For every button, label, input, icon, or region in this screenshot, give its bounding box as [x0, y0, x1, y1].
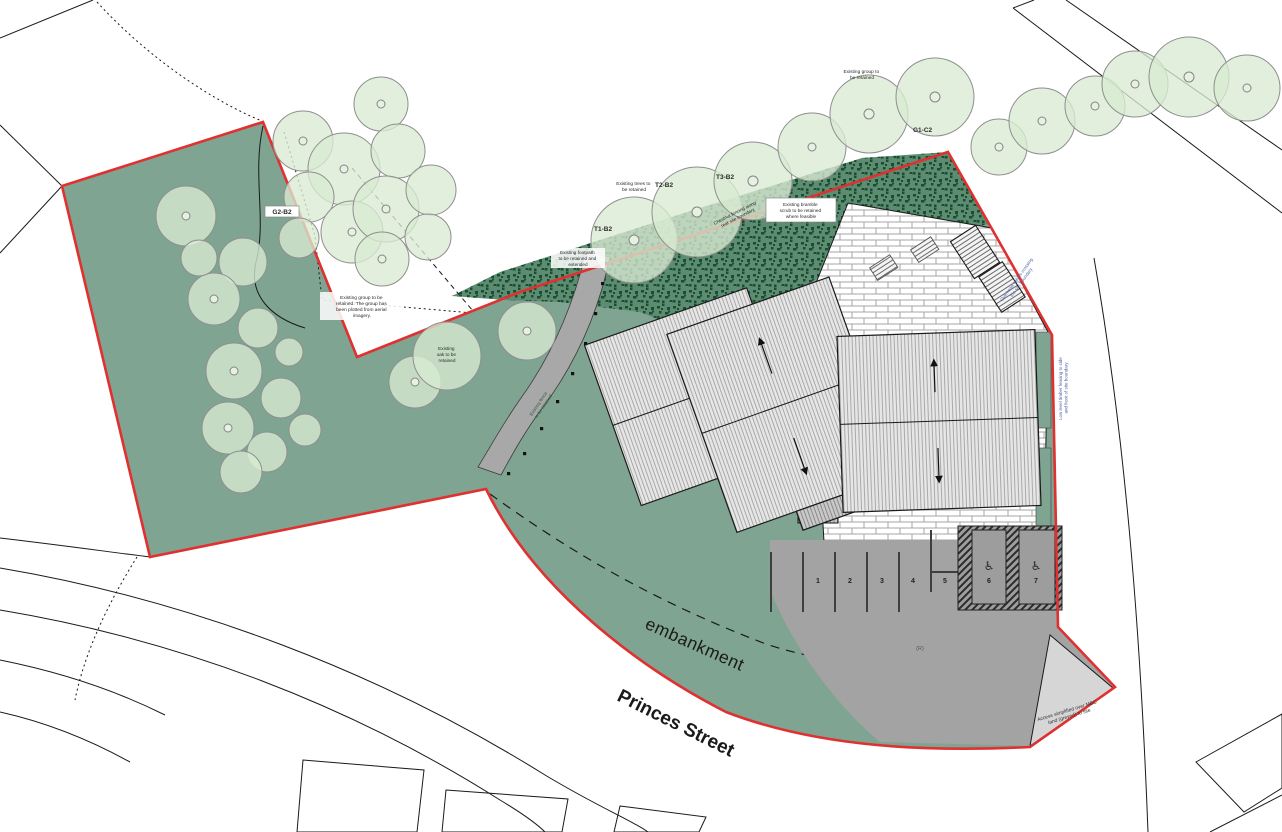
note-trees-retained: Existing trees to be retained: [616, 181, 651, 193]
building-c-roof: [837, 330, 1041, 513]
wheelchair-icon: ♿: [1031, 559, 1042, 573]
tree-tag-t1: T1-B2: [594, 226, 612, 233]
svg-text:7: 7: [1034, 578, 1038, 585]
site-plan-canvas: Princes Street embankment T1-B2 T2-B2 T3…: [0, 0, 1282, 832]
tree-tag-g2: G2-B2: [272, 209, 292, 216]
note-bramble: Existing bramble scrub to be retained wh…: [780, 202, 823, 219]
surface-tag: (R): [916, 646, 924, 652]
tree-group-north-east: [971, 37, 1280, 175]
tree-group-notch: [273, 77, 456, 286]
svg-text:3: 3: [880, 578, 884, 585]
site-plan-page: Princes Street embankment T1-B2 T2-B2 T3…: [0, 0, 1282, 832]
wheelchair-icon: ♿: [984, 559, 995, 573]
svg-text:4: 4: [911, 578, 915, 585]
svg-text:6: 6: [987, 578, 991, 585]
tree-tag-t2: T2-B2: [655, 182, 673, 189]
note-oak: Existing oak to be retained: [437, 346, 458, 363]
svg-text:5: 5: [943, 578, 947, 585]
note-timber-fence: Low level timber fencing to side and fro…: [1058, 356, 1069, 420]
tree-tag-t3: T3-B2: [716, 174, 734, 181]
svg-text:2: 2: [848, 578, 852, 585]
tree-tag-g1: G1-C2: [913, 127, 933, 134]
svg-text:1: 1: [816, 578, 820, 585]
